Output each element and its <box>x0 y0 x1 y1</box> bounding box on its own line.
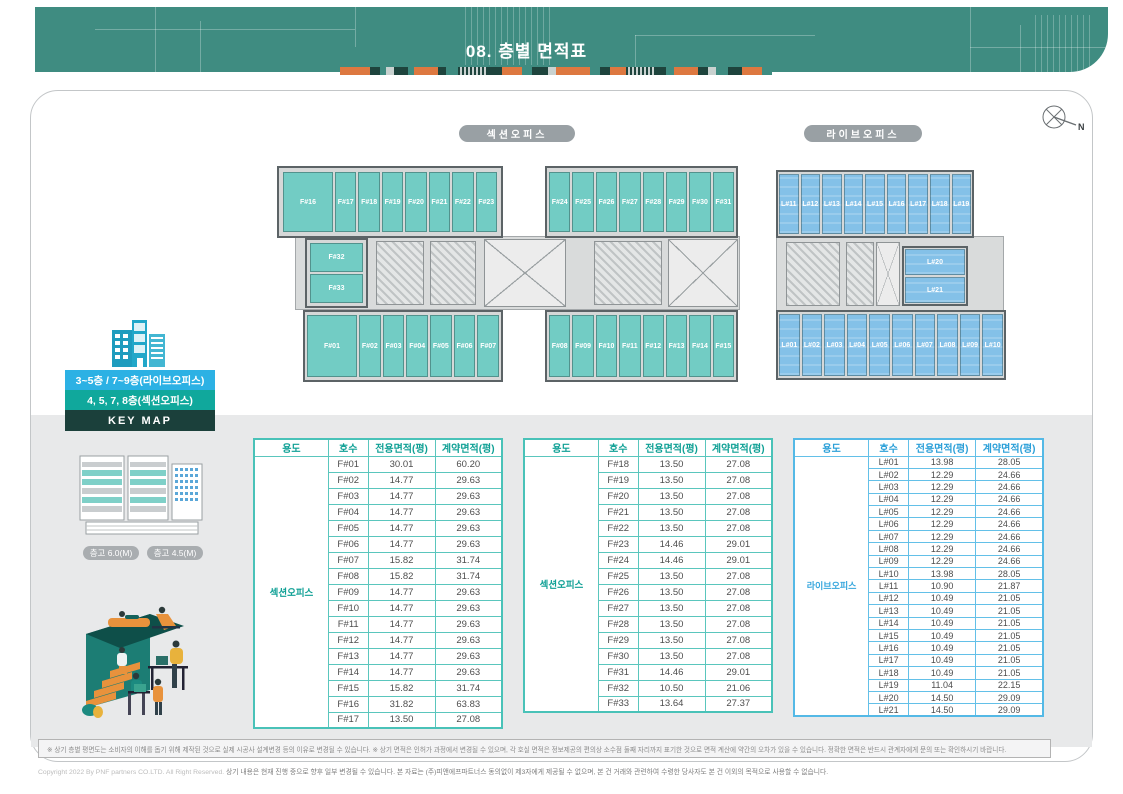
table-cell: F#27 <box>598 600 638 616</box>
table-cell: L#09 <box>869 555 909 567</box>
plan-unit-f30: F#30 <box>689 172 710 232</box>
table-cell: 22.15 <box>976 679 1043 691</box>
page: 08. 층별 면적표 섹션오피스 라이브오피스 N F#16F#17F#18F#… <box>0 0 1123 794</box>
table-cell: 14.46 <box>638 664 705 680</box>
table-cell: 27.08 <box>705 600 772 616</box>
area-table-section-1: 용도호수전용면적(평)계약면적(평)섹션오피스F#0130.0160.20F#0… <box>253 438 503 729</box>
plan-unit-f18: F#18 <box>358 172 379 232</box>
table-cell: 15.82 <box>368 552 435 568</box>
plan-units-row: F#01F#02F#03F#04F#05F#06F#07 <box>307 315 499 377</box>
table-cell: 12.29 <box>909 481 976 493</box>
table-cell: 13.98 <box>909 456 976 468</box>
strip-segment <box>502 67 522 75</box>
table-cell: 13.50 <box>638 520 705 536</box>
column-header: 용도 <box>794 439 869 456</box>
plan-units-row: F#24F#25F#26F#27F#28F#29F#30F#31 <box>549 172 734 232</box>
table-cell: 29.63 <box>435 504 502 520</box>
table-cell: F#20 <box>598 488 638 504</box>
plan-unit-l12: L#12 <box>801 174 821 234</box>
table-cell: 13.50 <box>368 712 435 728</box>
plan-unit-l15: L#15 <box>865 174 885 234</box>
table-cell: 24.66 <box>976 518 1043 530</box>
area-table-live: 용도호수전용면적(평)계약면적(평)라이브오피스L#0113.9828.05L#… <box>793 438 1044 717</box>
table-cell: F#14 <box>328 664 368 680</box>
table-cell: 27.08 <box>705 616 772 632</box>
strip-segment <box>446 67 458 75</box>
area-table: 용도호수전용면적(평)계약면적(평)섹션오피스F#1813.5027.08F#1… <box>523 438 773 713</box>
table-cell: 14.77 <box>368 504 435 520</box>
keymap-band-section: 4, 5, 7, 8층(섹션오피스) <box>65 390 215 410</box>
table-cell: 63.83 <box>435 696 502 712</box>
table-cell: 29.01 <box>705 664 772 680</box>
table-cell: 10.49 <box>909 654 976 666</box>
table-cell: 60.20 <box>435 456 502 472</box>
table-cell: 21.05 <box>976 629 1043 641</box>
table-cell: 31.74 <box>435 680 502 696</box>
void-area <box>668 239 738 307</box>
table-cell: F#29 <box>598 632 638 648</box>
strip-segment <box>762 67 772 75</box>
keymap-band-live: 3~5층 / 7~9층(라이브오피스) <box>65 370 215 390</box>
plan-unit-f07: F#07 <box>477 315 499 377</box>
table-cell: 29.01 <box>705 552 772 568</box>
strip-segment <box>438 67 446 75</box>
table-cell: L#12 <box>869 592 909 604</box>
column-header: 용도 <box>254 439 328 456</box>
plan-unit-f24: F#24 <box>549 172 570 232</box>
table-cell: 10.49 <box>909 605 976 617</box>
table-cell: 27.08 <box>705 584 772 600</box>
table-cell: 29.63 <box>435 648 502 664</box>
table-cell: 31.82 <box>368 696 435 712</box>
plan-unit-f19: F#19 <box>382 172 403 232</box>
table-cell: F#21 <box>598 504 638 520</box>
plan-unit-l04: L#04 <box>847 314 868 376</box>
table-cell: F#28 <box>598 616 638 632</box>
void-area <box>876 242 900 306</box>
table-cell: 27.08 <box>705 648 772 664</box>
section-office-label: 섹션오피스 <box>459 125 575 142</box>
plan-unit-l18: L#18 <box>930 174 950 234</box>
plan-unit-f15: F#15 <box>713 315 734 377</box>
table-cell: 31.74 <box>435 552 502 568</box>
circuit-decoration <box>1035 15 1095 72</box>
footnote-text: ※ 상기 층별 평면도는 소비자의 이해를 돕기 위해 제작된 것으로 실제 시… <box>47 744 1006 754</box>
plan-unit-l17: L#17 <box>908 174 928 234</box>
table-cell: 12.29 <box>909 518 976 530</box>
table-cell: 27.08 <box>705 472 772 488</box>
strip-segment <box>394 67 408 75</box>
table-cell: 14.77 <box>368 600 435 616</box>
table-cell: 29.63 <box>435 664 502 680</box>
table-cell: 10.50 <box>638 680 705 696</box>
table-cell: 13.50 <box>638 456 705 472</box>
strip-segment <box>610 67 626 75</box>
table-cell: L#11 <box>869 580 909 592</box>
table-cell: 21.06 <box>705 680 772 696</box>
table-cell: F#23 <box>598 536 638 552</box>
table-cell: F#05 <box>328 520 368 536</box>
area-table-section-2: 용도호수전용면적(평)계약면적(평)섹션오피스F#1813.5027.08F#1… <box>523 438 773 713</box>
table-cell: F#31 <box>598 664 638 680</box>
plan-unit-f29: F#29 <box>666 172 687 232</box>
table-cell: 10.49 <box>909 629 976 641</box>
table-cell: F#22 <box>598 520 638 536</box>
plan-unit-f31: F#31 <box>713 172 734 232</box>
table-cell: L#15 <box>869 629 909 641</box>
table-cell: F#26 <box>598 584 638 600</box>
table-cell: 12.29 <box>909 506 976 518</box>
strip-segment <box>370 67 380 75</box>
circuit-decoration <box>1020 25 1021 72</box>
table-cell: 27.08 <box>435 712 502 728</box>
table-cell: F#10 <box>328 600 368 616</box>
plan-unit-l06: L#06 <box>892 314 913 376</box>
table-cell: 27.08 <box>705 456 772 472</box>
elevator-core <box>846 242 874 306</box>
table-cell: 13.50 <box>638 584 705 600</box>
table-cell: 29.63 <box>435 600 502 616</box>
circuit-decoration <box>95 29 355 30</box>
plan-unit-l11: L#11 <box>779 174 799 234</box>
table-cell: F#13 <box>328 648 368 664</box>
table-cell: F#18 <box>598 456 638 472</box>
office-people-illustration <box>72 592 212 722</box>
plan-units-row: F#16F#17F#18F#19F#20F#21F#22F#23 <box>283 172 497 232</box>
header-banner: 08. 층별 면적표 <box>35 7 1108 72</box>
strip-segment <box>626 67 654 75</box>
table-cell: 27.08 <box>705 520 772 536</box>
strip-segment <box>522 67 532 75</box>
table-cell: 21.05 <box>976 592 1043 604</box>
plan-unit-l21: L#21 <box>905 277 965 303</box>
table-cell: 29.63 <box>435 584 502 600</box>
keymap-band-title: KEY MAP <box>65 410 215 431</box>
table-cell: 24.66 <box>976 530 1043 542</box>
area-table: 용도호수전용면적(평)계약면적(평)라이브오피스L#0113.9828.05L#… <box>793 438 1044 717</box>
table-cell: L#01 <box>869 456 909 468</box>
table-cell: F#15 <box>328 680 368 696</box>
compass-icon: N <box>1040 103 1086 139</box>
plan-unit-f25: F#25 <box>572 172 593 232</box>
table-cell: 13.50 <box>638 568 705 584</box>
table-row: 섹션오피스F#0130.0160.20 <box>254 456 502 472</box>
table-cell: 27.08 <box>705 504 772 520</box>
table-cell: 13.50 <box>638 504 705 520</box>
table-cell: 29.63 <box>435 488 502 504</box>
void-area <box>484 239 566 307</box>
table-cell: 12.29 <box>909 543 976 555</box>
column-header: 계약면적(평) <box>705 439 772 456</box>
table-cell: F#24 <box>598 552 638 568</box>
plan-unit-l14: L#14 <box>844 174 864 234</box>
strip-segment <box>728 67 742 75</box>
table-cell: 12.29 <box>909 555 976 567</box>
table-cell: F#25 <box>598 568 638 584</box>
table-cell: 21.05 <box>976 605 1043 617</box>
plan-unit-f20: F#20 <box>405 172 426 232</box>
plan-unit-l09: L#09 <box>960 314 981 376</box>
plan-unit-f09: F#09 <box>572 315 593 377</box>
plan-unit-f01: F#01 <box>307 315 357 377</box>
table-cell: 15.82 <box>368 568 435 584</box>
plan-unit-l16: L#16 <box>887 174 907 234</box>
table-cell: F#30 <box>598 648 638 664</box>
table-cell: F#07 <box>328 552 368 568</box>
table-cell: 24.66 <box>976 543 1043 555</box>
column-header: 호수 <box>328 439 368 456</box>
table-cell: L#13 <box>869 605 909 617</box>
plan-unit-l01: L#01 <box>779 314 800 376</box>
table-cell: 14.50 <box>909 691 976 703</box>
area-table: 용도호수전용면적(평)계약면적(평)섹션오피스F#0130.0160.20F#0… <box>253 438 503 729</box>
table-cell: 27.37 <box>705 696 772 712</box>
plan-units-col: L#20L#21 <box>905 249 965 303</box>
table-cell: 14.77 <box>368 584 435 600</box>
table-row: 라이브오피스L#0113.9828.05 <box>794 456 1043 468</box>
table-cell: L#16 <box>869 642 909 654</box>
table-cell: L#10 <box>869 568 909 580</box>
table-cell: 24.66 <box>976 555 1043 567</box>
table-cell: 24.66 <box>976 493 1043 505</box>
table-cell: 29.63 <box>435 632 502 648</box>
table-cell: 29.63 <box>435 616 502 632</box>
live-office-label: 라이브오피스 <box>804 125 922 142</box>
table-cell: 24.66 <box>976 506 1043 518</box>
table-cell: F#02 <box>328 472 368 488</box>
table-cell: 29.01 <box>705 536 772 552</box>
strip-segment <box>600 67 610 75</box>
column-header: 전용면적(평) <box>638 439 705 456</box>
column-header: 용도 <box>524 439 598 456</box>
copyright-line: Copyright 2022 By PNF partners CO.LTD. A… <box>38 766 1098 776</box>
copyright-text: Copyright 2022 By PNF partners CO.LTD. A… <box>38 769 224 776</box>
table-cell: 12.29 <box>909 493 976 505</box>
table-cell: 29.63 <box>435 520 502 536</box>
table-cell: F#06 <box>328 536 368 552</box>
table-cell: 13.50 <box>638 648 705 664</box>
table-cell: 24.66 <box>976 481 1043 493</box>
plan-unit-f27: F#27 <box>619 172 640 232</box>
usage-cell: 섹션오피스 <box>254 456 328 728</box>
table-cell: F#19 <box>598 472 638 488</box>
plan-unit-f08: F#08 <box>549 315 570 377</box>
table-cell: L#05 <box>869 506 909 518</box>
table-cell: 13.50 <box>638 632 705 648</box>
column-header: 전용면적(평) <box>368 439 435 456</box>
plan-unit-l07: L#07 <box>915 314 936 376</box>
plan-unit-f22: F#22 <box>452 172 473 232</box>
table-cell: F#33 <box>598 696 638 712</box>
building-icon <box>112 320 168 367</box>
plan-unit-f04: F#04 <box>406 315 428 377</box>
plan-units-row: F#08F#09F#10F#11F#12F#13F#14F#15 <box>549 315 734 377</box>
table-cell: 14.77 <box>368 536 435 552</box>
table-cell: 21.05 <box>976 642 1043 654</box>
table-cell: L#07 <box>869 530 909 542</box>
plan-unit-l03: L#03 <box>824 314 845 376</box>
table-cell: 21.05 <box>976 654 1043 666</box>
table-cell: 14.77 <box>368 472 435 488</box>
column-header: 전용면적(평) <box>909 439 976 456</box>
table-cell: 13.64 <box>638 696 705 712</box>
strip-segment <box>708 67 716 75</box>
table-cell: 30.01 <box>368 456 435 472</box>
table-cell: 10.49 <box>909 667 976 679</box>
strip-segment <box>698 67 708 75</box>
plan-unit-f12: F#12 <box>643 315 664 377</box>
plan-unit-f26: F#26 <box>596 172 617 232</box>
table-cell: L#17 <box>869 654 909 666</box>
copyright-notice: 상기 내용은 현재 진행 중으로 향후 일부 변경될 수 있습니다. 본 자료는… <box>226 769 828 776</box>
table-row: 섹션오피스F#1813.5027.08 <box>524 456 772 472</box>
table-cell: 27.08 <box>705 488 772 504</box>
table-cell: 31.74 <box>435 568 502 584</box>
table-cell: 11.04 <box>909 679 976 691</box>
table-cell: F#32 <box>598 680 638 696</box>
table-cell: 29.63 <box>435 472 502 488</box>
usage-cell: 섹션오피스 <box>524 456 598 712</box>
table-cell: 21.05 <box>976 617 1043 629</box>
table-cell: 29.63 <box>435 536 502 552</box>
plan-unit-f05: F#05 <box>430 315 452 377</box>
table-cell: 12.29 <box>909 530 976 542</box>
elevator-core <box>430 241 476 305</box>
table-cell: 10.49 <box>909 592 976 604</box>
deco-strip <box>340 67 772 75</box>
table-cell: 14.77 <box>368 488 435 504</box>
table-cell: F#04 <box>328 504 368 520</box>
strip-segment <box>458 67 488 75</box>
table-cell: 27.08 <box>705 568 772 584</box>
table-cell: 13.50 <box>638 488 705 504</box>
plan-unit-l13: L#13 <box>822 174 842 234</box>
strip-segment <box>590 67 600 75</box>
elevator-core <box>376 241 424 305</box>
plan-unit-f23: F#23 <box>476 172 497 232</box>
table-cell: 13.50 <box>638 600 705 616</box>
column-header: 호수 <box>598 439 638 456</box>
plan-unit-f21: F#21 <box>429 172 450 232</box>
strip-segment <box>666 67 674 75</box>
usage-cell: 라이브오피스 <box>794 456 869 716</box>
table-cell: 14.77 <box>368 648 435 664</box>
table-cell: 15.82 <box>368 680 435 696</box>
plan-unit-f32: F#32 <box>310 243 363 272</box>
table-cell: L#18 <box>869 667 909 679</box>
plan-unit-f11: F#11 <box>619 315 640 377</box>
table-cell: L#06 <box>869 518 909 530</box>
table-cell: 27.08 <box>705 632 772 648</box>
svg-text:N: N <box>1078 122 1085 132</box>
table-cell: L#20 <box>869 691 909 703</box>
plan-unit-l20: L#20 <box>905 249 965 275</box>
plan-units-row: L#11L#12L#13L#14L#15L#16L#17L#18L#19 <box>779 174 971 234</box>
plan-unit-l05: L#05 <box>869 314 890 376</box>
table-cell: 29.09 <box>976 704 1043 716</box>
elevator-core <box>786 242 840 306</box>
strip-segment <box>742 67 762 75</box>
plan-unit-f02: F#02 <box>359 315 381 377</box>
plan-unit-l19: L#19 <box>952 174 972 234</box>
height-pill-2: 층고 4.5(M) <box>147 546 203 560</box>
strip-segment <box>488 67 502 75</box>
table-cell: 13.98 <box>909 568 976 580</box>
plan-unit-f14: F#14 <box>689 315 710 377</box>
table-cell: 14.77 <box>368 632 435 648</box>
plan-unit-f10: F#10 <box>596 315 617 377</box>
circuit-decoration <box>635 35 815 36</box>
table-cell: L#02 <box>869 468 909 480</box>
table-cell: 10.49 <box>909 642 976 654</box>
table-cell: 21.05 <box>976 667 1043 679</box>
table-cell: 13.50 <box>638 472 705 488</box>
table-cell: F#03 <box>328 488 368 504</box>
table-cell: 10.90 <box>909 580 976 592</box>
strip-segment <box>532 67 548 75</box>
column-header: 호수 <box>869 439 909 456</box>
table-cell: 28.05 <box>976 568 1043 580</box>
table-cell: 28.05 <box>976 456 1043 468</box>
plan-units-col: F#32F#33 <box>310 243 363 303</box>
plan-unit-l10: L#10 <box>982 314 1003 376</box>
strip-segment <box>674 67 698 75</box>
table-cell: 14.50 <box>909 704 976 716</box>
strip-segment <box>340 67 370 75</box>
table-cell: 13.50 <box>638 616 705 632</box>
strip-segment <box>548 67 556 75</box>
table-cell: F#16 <box>328 696 368 712</box>
table-cell: L#21 <box>869 704 909 716</box>
table-cell: L#03 <box>869 481 909 493</box>
table-cell: L#14 <box>869 617 909 629</box>
table-cell: F#01 <box>328 456 368 472</box>
table-cell: 14.77 <box>368 616 435 632</box>
table-cell: 29.09 <box>976 691 1043 703</box>
plan-unit-f17: F#17 <box>335 172 356 232</box>
table-cell: F#11 <box>328 616 368 632</box>
plan-unit-f03: F#03 <box>383 315 405 377</box>
strip-segment <box>386 67 394 75</box>
table-cell: 10.49 <box>909 617 976 629</box>
elevator-core <box>594 241 662 305</box>
table-cell: F#08 <box>328 568 368 584</box>
column-header: 계약면적(평) <box>435 439 502 456</box>
building-elevation-illustration <box>78 452 204 540</box>
plan-unit-f28: F#28 <box>643 172 664 232</box>
footnote-box: ※ 상기 층별 평면도는 소비자의 이해를 돕기 위해 제작된 것으로 실제 시… <box>38 739 1051 758</box>
table-cell: L#04 <box>869 493 909 505</box>
strip-segment <box>556 67 590 75</box>
plan-unit-l08: L#08 <box>937 314 958 376</box>
table-cell: L#08 <box>869 543 909 555</box>
plan-unit-f13: F#13 <box>666 315 687 377</box>
column-header: 계약면적(평) <box>976 439 1043 456</box>
plan-unit-f06: F#06 <box>454 315 476 377</box>
height-pill-1: 층고 6.0(M) <box>83 546 139 560</box>
plan-unit-f33: F#33 <box>310 274 363 303</box>
table-cell: 21.87 <box>976 580 1043 592</box>
strip-segment <box>414 67 438 75</box>
table-cell: 14.46 <box>638 536 705 552</box>
page-title: 08. 층별 면적표 <box>35 37 1018 62</box>
plan-unit-l02: L#02 <box>802 314 823 376</box>
table-cell: 14.77 <box>368 664 435 680</box>
table-cell: 12.29 <box>909 468 976 480</box>
table-cell: L#19 <box>869 679 909 691</box>
strip-segment <box>654 67 666 75</box>
strip-segment <box>716 67 728 75</box>
